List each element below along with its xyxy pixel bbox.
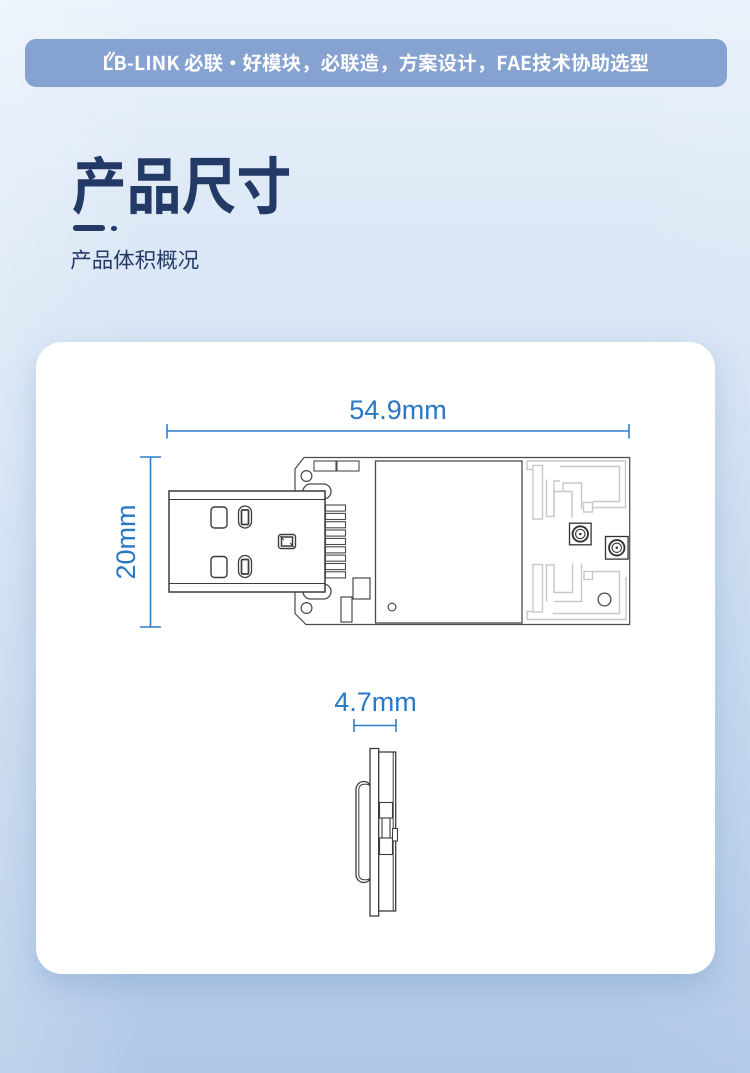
svg-text:20mm: 20mm	[111, 504, 141, 579]
svg-text:54.9mm: 54.9mm	[349, 395, 447, 425]
svg-text:4.7mm: 4.7mm	[334, 687, 417, 717]
